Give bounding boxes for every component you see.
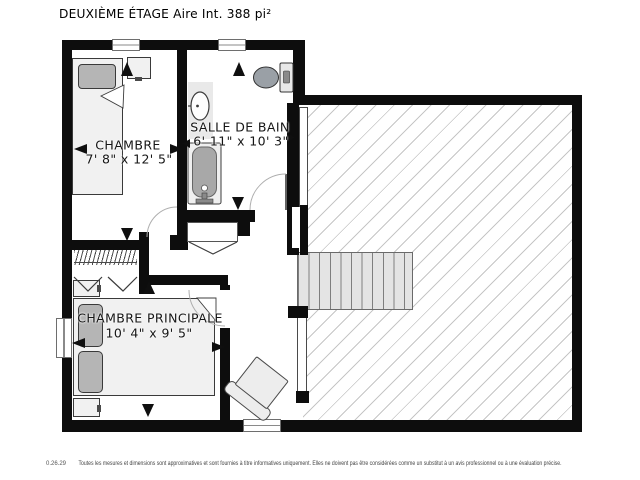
dimension-arrow-icon-down [142,404,154,417]
room-dims-chambre-principale: 10' 4" x 9' 5" [105,326,192,341]
dimension-arrow-icon-right [212,342,225,352]
dimension-arrow-icon-down [121,228,133,241]
dimension-arrows [72,62,295,417]
door-arc-icon-bathroom [250,174,286,210]
room-label-salle-de-bain: SALLE DE BAIN [190,120,289,135]
version-number: 0.26.29 [46,461,66,467]
dimension-arrow-icon-left [182,139,190,148]
bed-fold [101,85,124,108]
room-label-chambre-principale: CHAMBRE PRINCIPALE [77,311,223,326]
room-label-chambre: CHAMBRE [95,138,160,153]
dimension-arrow-icon-up [233,62,245,76]
bifold-door-icon-hall [189,242,237,254]
bifold-door-icon-closet [74,277,137,291]
door-arc-icon-chambre [147,207,177,237]
toilet-icon [254,63,294,92]
dimension-arrow-icon-up [121,62,133,76]
bathtub-icon [188,143,221,204]
room-dims-salle-de-bain: 6' 11" x 10' 3" [193,134,288,149]
dimension-arrow-icon-down [232,197,244,210]
room-dims-chambre: 7' 8" x 12' 5" [85,152,172,167]
dimension-arrow-icon-up [143,281,155,294]
dimension-arrow-icon-left [72,338,85,348]
sink-icon [188,92,209,120]
disclaimer-text: Toutes les mesures et dimensions sont ap… [78,461,561,467]
floorplan-symbols [0,0,640,480]
